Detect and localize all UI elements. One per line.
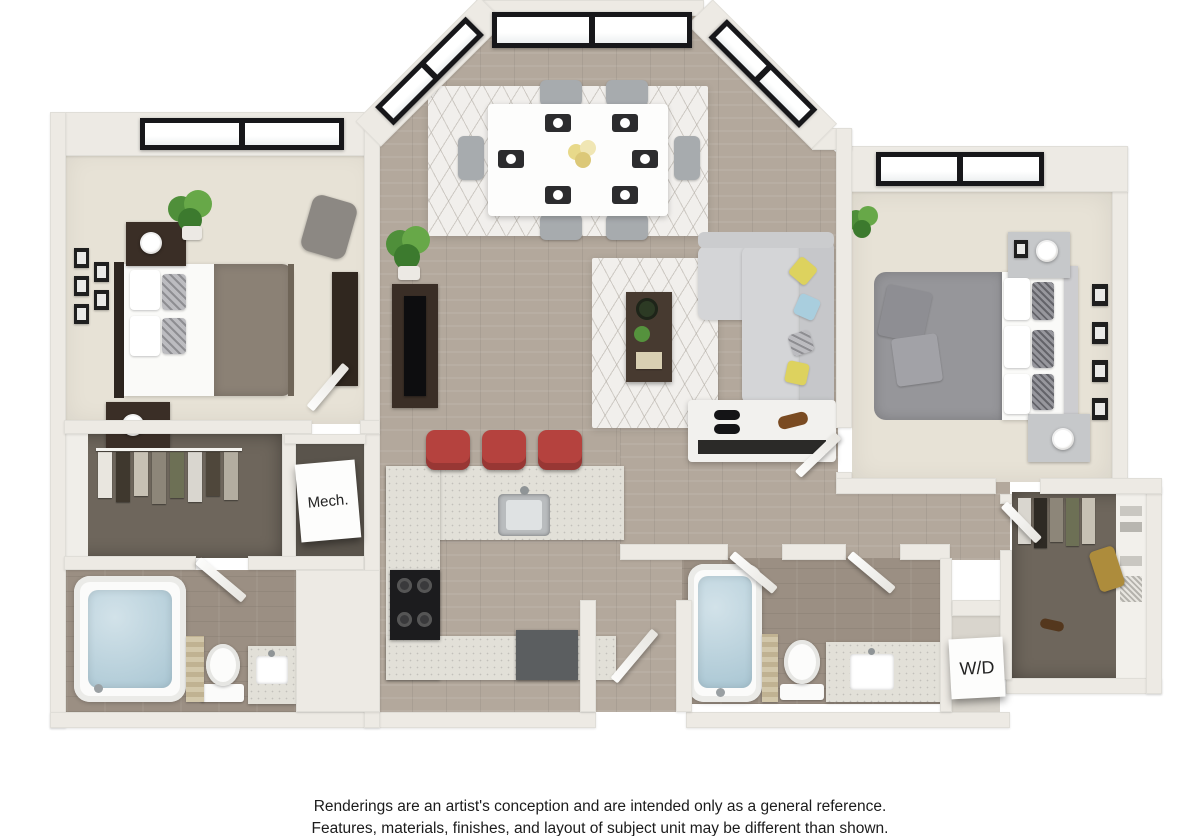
plate [506,154,516,164]
wall-art-frame [74,304,89,324]
left-bed-accent-pillow [162,318,186,354]
folded-clothes-stack [1120,556,1142,566]
black-shoes [714,410,740,420]
window-pane [245,123,339,145]
wall-segment [836,478,996,494]
burner [417,612,432,627]
right-bathtub-water [698,576,752,688]
right-bed-pillow [1004,326,1030,368]
left-bedroom-plant [168,190,216,240]
wall-art-frame [1092,360,1108,382]
dining-chair [606,214,648,240]
wall-segment [580,600,596,712]
wall-segment [282,434,296,558]
left-bed-footboard [288,264,294,396]
coffee-table-plant [636,298,658,320]
window-pane [145,123,239,145]
bar-stool [538,430,582,470]
disclaimer: Renderings are an artist's conception an… [0,796,1200,836]
window-pane [963,157,1039,181]
folded-clothes-stack [1120,506,1142,516]
placemat [612,186,638,204]
mech-label: Mech. [307,491,349,511]
closet-rod [96,448,242,451]
wall-segment [50,712,596,728]
wall-segment [248,556,364,570]
hanging-clothes [1066,498,1079,546]
dining-chair [458,136,484,180]
left-nightstand-lamp [140,232,162,254]
left-bathtub-water [88,590,172,688]
left-bed-headboard [114,262,124,398]
left-bedroom-window [140,118,344,150]
left-toilet [206,644,240,686]
kitchen-faucet [520,486,529,495]
placemat [498,150,524,168]
right-shower-curtain [762,634,778,702]
plant-pot [182,226,202,240]
left-bed-pillow [130,270,160,310]
hanging-clothes [98,452,112,498]
wall-art-frame [74,276,89,296]
plate [553,190,563,200]
hanging-clothes [116,452,130,502]
stove-cooktop [390,570,440,640]
shoe-console-shelf [698,440,826,454]
left-closet-shelf [66,434,88,558]
disclaimer-line-1: Renderings are an artist's conception an… [0,796,1200,818]
sofa-pillow-yellow [784,360,810,386]
right-nightstand-bottom-lamp [1052,428,1074,450]
sink-basin [506,500,542,530]
window-pane [881,157,957,181]
wall-segment [360,420,380,434]
right-bed-accent-pillow [1032,330,1054,368]
bay-window-center [492,12,692,48]
right-bed-pillow [1004,374,1030,414]
wall-art-frame [74,248,89,268]
burner [417,578,432,593]
wall-segment [284,434,366,444]
wall-segment [620,544,728,560]
plate [553,118,563,128]
right-bedroom-window [876,152,1044,186]
living-plant [386,226,432,280]
wall-segment [296,570,380,712]
tv-flatscreen [404,296,426,396]
right-bed-headboard [1064,266,1078,424]
coffee-table-plant-small [634,326,650,342]
dining-chair [606,80,648,106]
placemat [545,186,571,204]
dishwasher [516,630,578,680]
right-bed-large-pillow [891,333,943,387]
nightstand-photo [1014,240,1028,258]
left-tub-faucet [94,684,103,693]
bar-stool [482,430,526,470]
left-bed-accent-pillow [162,274,186,310]
coffee-table-book [636,352,662,369]
folded-clothes-stack [1120,522,1142,532]
dining-chair [540,80,582,106]
right-vanity-faucet [868,648,875,655]
hanging-clothes [170,452,184,498]
hanging-clothes [188,452,202,502]
hanging-clothes [224,452,238,500]
wall-art-frame [94,290,109,310]
left-vanity-sink [256,656,288,684]
mech-closet-door-panel: Mech. [295,460,362,543]
washer-dryer-panel: W/D [948,637,1005,700]
table-centerpiece-flowers [566,138,600,172]
left-bed-duvet [214,264,292,396]
wall-art-frame [94,262,109,282]
right-toilet-tank [780,684,824,700]
right-toilet [784,640,820,684]
wall-segment [836,128,852,428]
flower [575,152,591,168]
wall-segment [1040,478,1162,494]
wall-art-frame [1092,398,1108,420]
black-shoes [714,424,740,434]
plant-pot [398,266,420,280]
hanging-clothes [1050,498,1063,542]
plate [620,190,630,200]
wall-segment [64,556,196,570]
burner [397,612,412,627]
dining-chair [540,214,582,240]
wall-segment [676,600,692,712]
wall-segment [1146,486,1162,694]
wall-segment [686,712,1010,728]
wall-segment [1112,146,1128,486]
sofa-arm [698,232,834,248]
right-bed-accent-pillow [1032,282,1054,320]
plate [640,154,650,164]
dining-chair [674,136,700,180]
window-pane [497,17,589,43]
burner [397,578,412,593]
left-toilet-tank [200,684,244,702]
wall-art-frame [1092,322,1108,344]
hanging-clothes [1082,498,1095,544]
right-nightstand-lamp [1036,240,1058,262]
bar-stool [426,430,470,470]
washer-dryer-label: W/D [959,657,995,680]
wall-segment [64,420,312,434]
floorplan-canvas: Mech. W/D Renderings are an artist's con… [0,0,1200,836]
placemat [632,150,658,168]
wall-segment [1006,678,1162,694]
left-bed-pillow [130,316,160,356]
placemat [612,114,638,132]
left-shower-curtain [186,636,204,702]
wall-segment [782,544,846,560]
window-pane [595,17,687,43]
right-vanity-sink [850,654,894,690]
placemat [545,114,571,132]
right-tub-faucet [716,688,725,697]
right-bed-pillow [1004,278,1030,320]
plant-foliage [853,220,871,238]
hanging-clothes [134,452,148,496]
right-bed-accent-pillow [1032,374,1054,410]
plate [620,118,630,128]
left-vanity-faucet [268,650,275,657]
kitchen-sink [498,494,550,536]
hanging-clothes [206,452,220,496]
disclaimer-line-2: Features, materials, finishes, and layou… [0,818,1200,836]
wall-art-frame [1092,284,1108,306]
hanging-clothes [152,452,166,504]
